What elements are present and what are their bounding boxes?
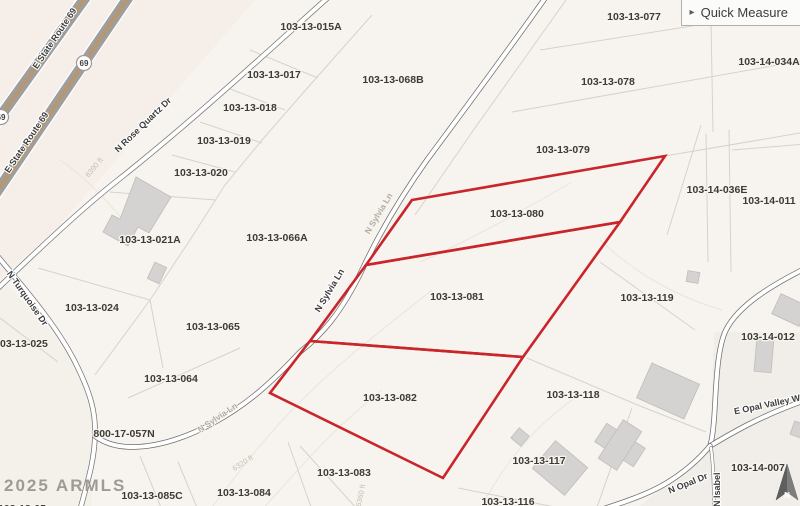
parcel-label: 103-14-036E (687, 184, 748, 196)
road-label-isabella: N Isabel (712, 472, 722, 506)
parcel-label: 103-14-007 (731, 462, 785, 474)
parcel-label: 103-13-064 (144, 373, 198, 385)
route-shield-number: 69 (0, 113, 6, 122)
parcel-label: 103-14-034A (738, 56, 800, 68)
map-canvas[interactable]: 69 69 E State Route 69 E State Route 69 … (0, 0, 800, 506)
parcel-label: 103-13-021A (119, 234, 181, 246)
parcel-label: 103-13-025 (0, 338, 48, 350)
parcel-label: 103-13-066A (246, 232, 308, 244)
parcel-map-viewer: 69 69 E State Route 69 E State Route 69 … (0, 0, 800, 506)
parcel-label: 103-13-019 (197, 135, 251, 147)
parcel-label: 103-13-020 (174, 167, 228, 179)
parcel-label: 103-13-116 (481, 496, 534, 506)
north-arrow-label: N (784, 491, 790, 500)
parcel-label: 103-13-084 (217, 487, 271, 499)
route-shield-number: 69 (80, 59, 89, 68)
parcel-label: 103-13-083 (317, 467, 371, 479)
parcel-label: 103-13-024 (65, 302, 119, 314)
parcel-label: 103-13-077 (607, 11, 661, 23)
quick-measure-label: Quick Measure (701, 5, 788, 20)
parcel-label: 103-13-017 (247, 69, 301, 81)
parcel-label: 800-17-057N (93, 428, 154, 440)
parcel-label: 103-13-085C (121, 490, 183, 502)
parcel-label: 103-13-015A (280, 21, 342, 33)
parcel-label: 103-13-119 (620, 292, 673, 304)
watermark: 2025 ARMLS (4, 476, 126, 495)
parcel-label: 103-13-079 (536, 144, 590, 156)
parcel-label: 103-13-068B (362, 74, 424, 86)
parcel-label: 103-13-118 (546, 389, 599, 401)
play-icon: ▸ (690, 8, 695, 18)
parcel-label: 103-14-012 (741, 331, 795, 343)
parcel-label: 103-13-082 (363, 392, 417, 404)
parcel-label: 103-13-080 (490, 208, 544, 220)
parcel-label: 103-13-018 (223, 102, 277, 114)
parcel-label: 103-13-065 (186, 321, 240, 333)
quick-measure-button[interactable]: ▸ Quick Measure (681, 0, 800, 26)
parcel-label: 103-13-117 (512, 455, 565, 467)
parcel-label: 103-13-078 (581, 76, 635, 88)
building (686, 271, 700, 284)
parcel-label: 103-14-011 (742, 195, 795, 207)
parcel-label: 103-13-081 (430, 291, 484, 303)
